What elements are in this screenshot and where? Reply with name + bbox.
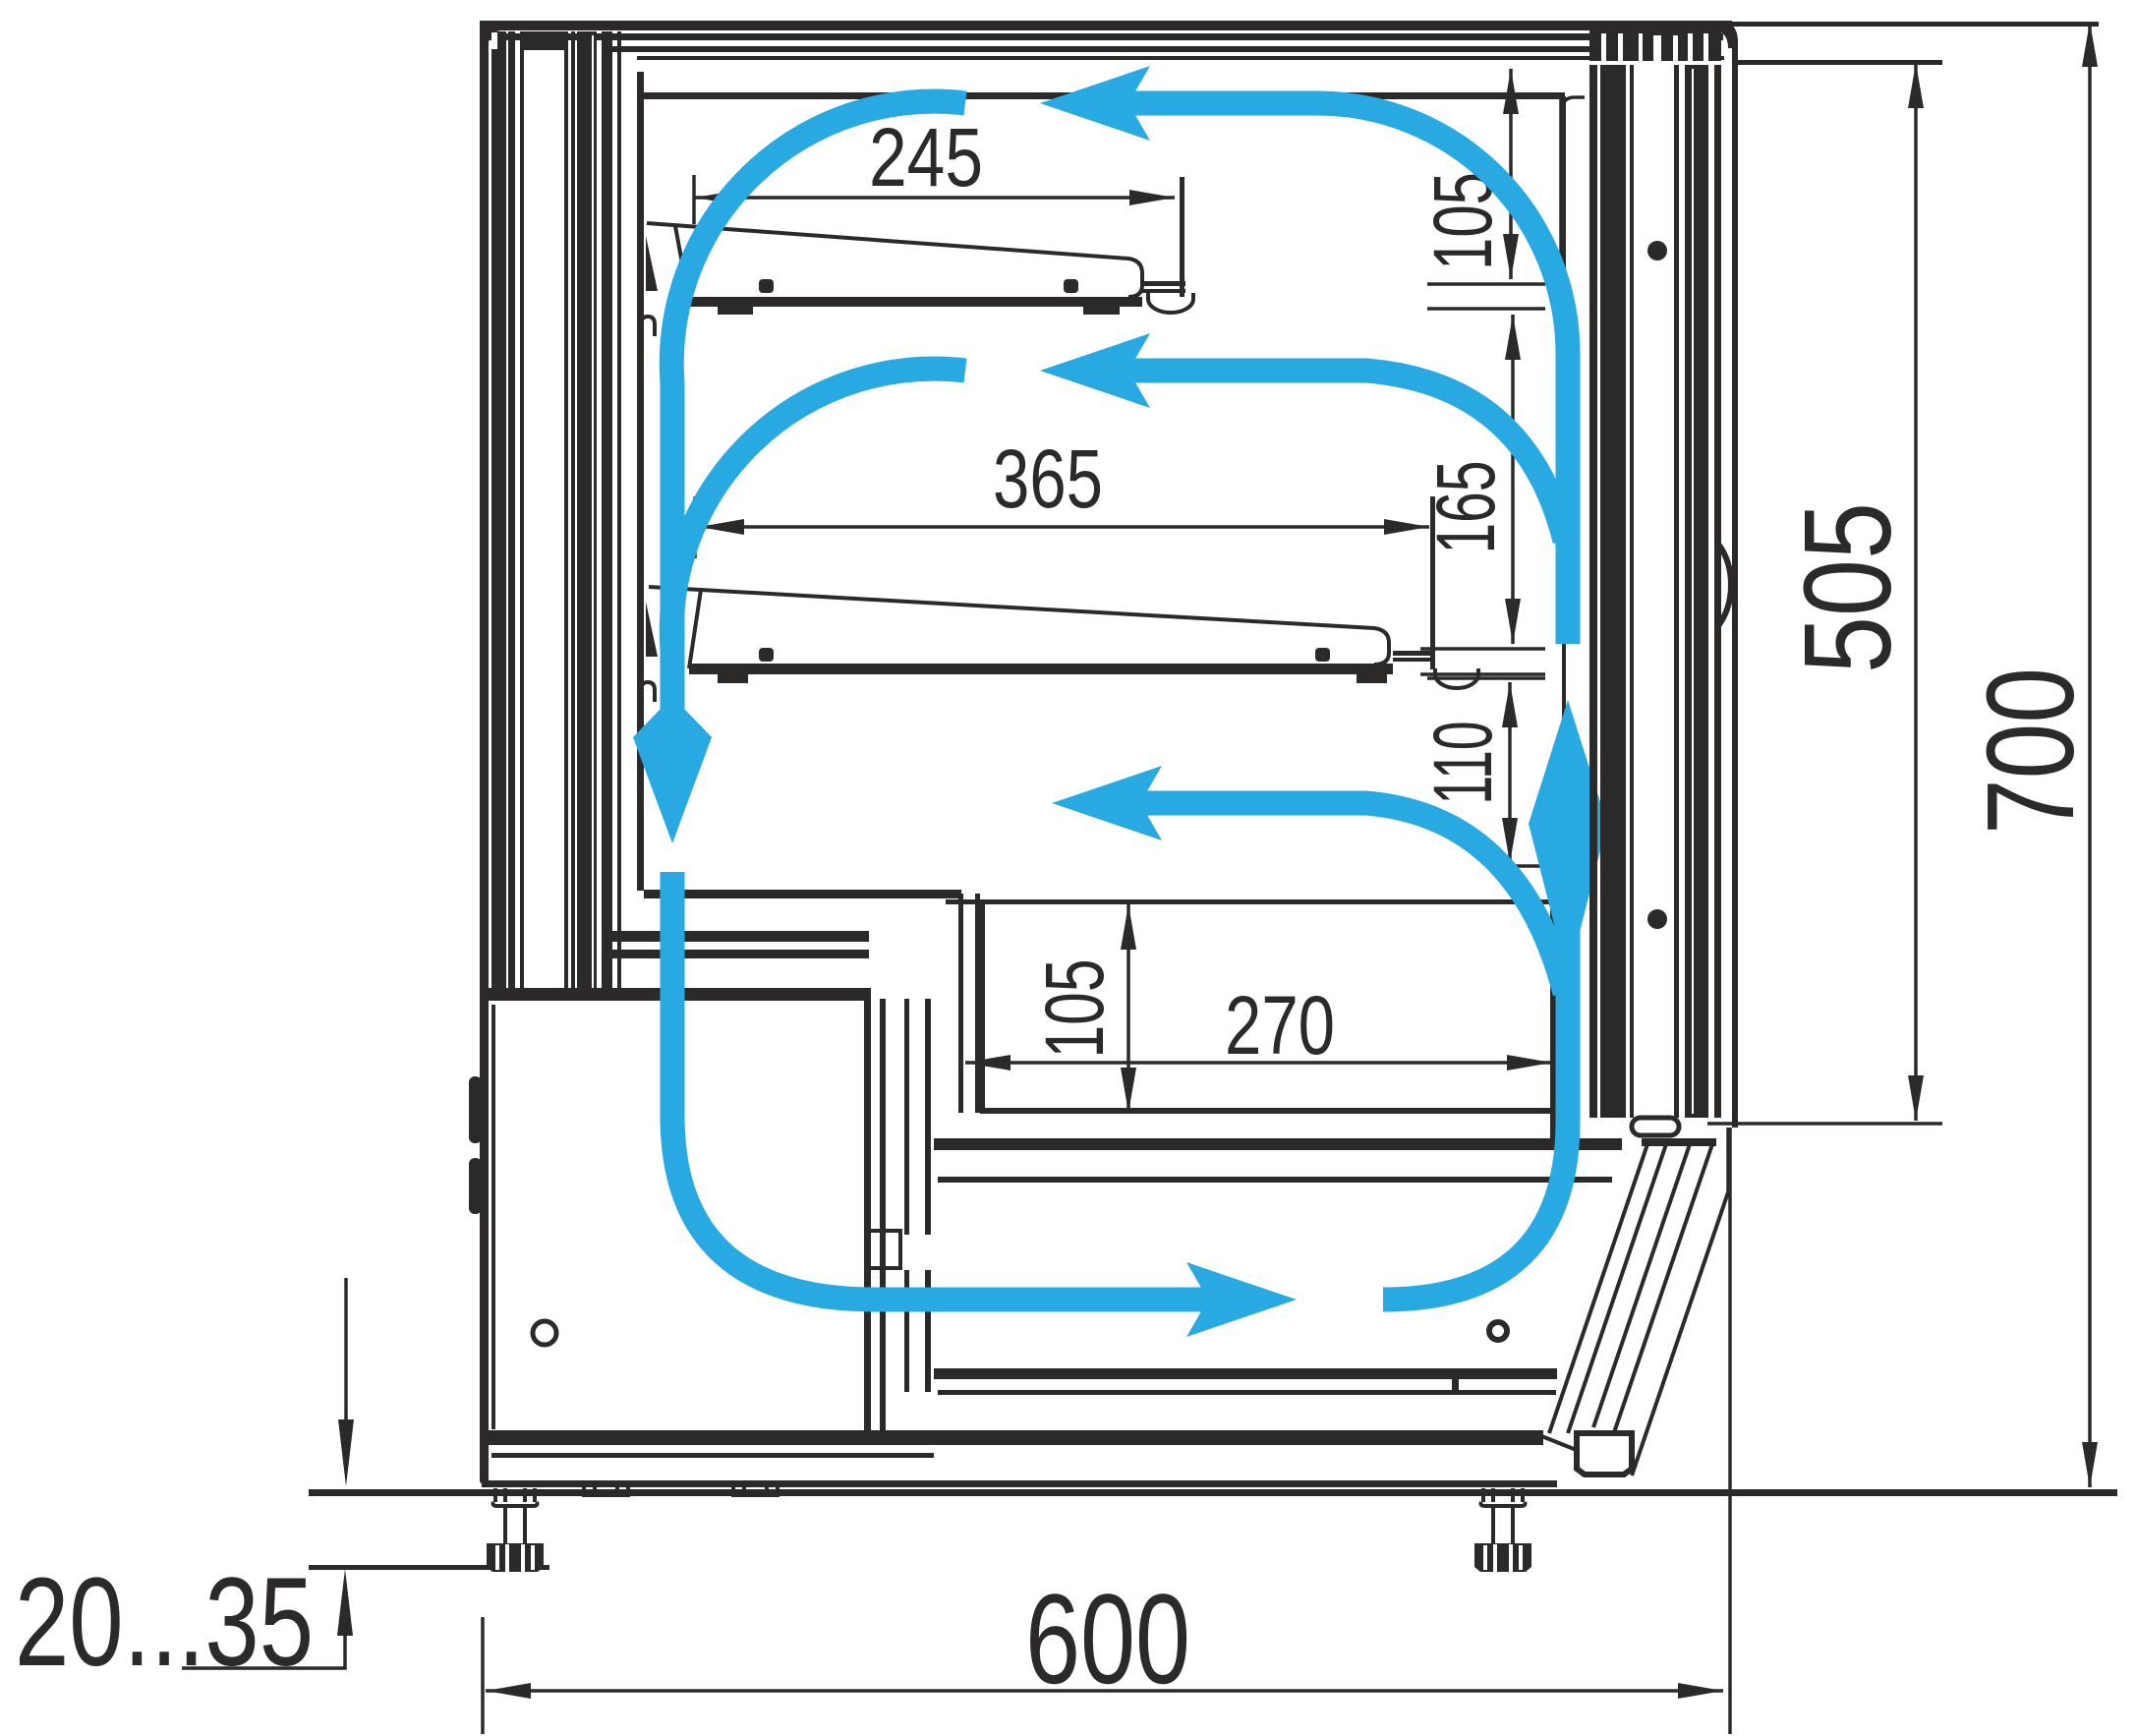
svg-text:110: 110 bbox=[1416, 722, 1509, 805]
svg-text:700: 700 bbox=[1961, 667, 2100, 835]
svg-text:505: 505 bbox=[1778, 502, 1917, 673]
svg-text:245: 245 bbox=[869, 111, 983, 203]
svg-text:105: 105 bbox=[1028, 959, 1121, 1059]
svg-text:270: 270 bbox=[1225, 979, 1335, 1071]
svg-text:20...35: 20...35 bbox=[15, 1552, 314, 1693]
svg-text:600: 600 bbox=[1025, 1567, 1190, 1710]
svg-text:165: 165 bbox=[1419, 461, 1512, 554]
svg-text:365: 365 bbox=[993, 433, 1103, 525]
